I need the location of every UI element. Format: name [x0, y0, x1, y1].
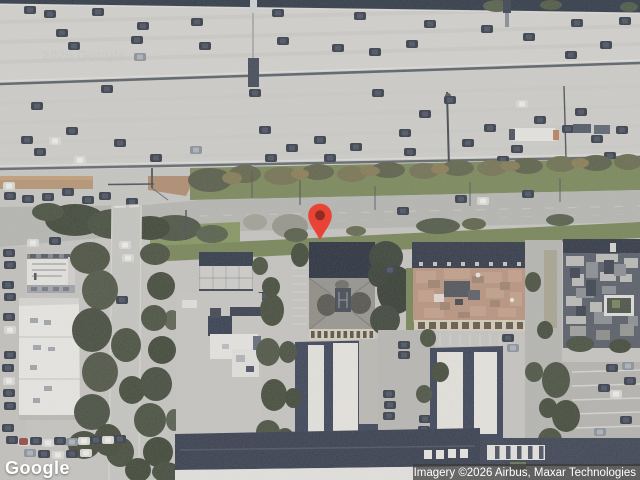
svg-text:Imagery ©2026 Airbus, Maxar Te: Imagery ©2026 Airbus, Maxar Technologies	[414, 467, 637, 479]
svg-text:Google: Google	[5, 458, 70, 478]
